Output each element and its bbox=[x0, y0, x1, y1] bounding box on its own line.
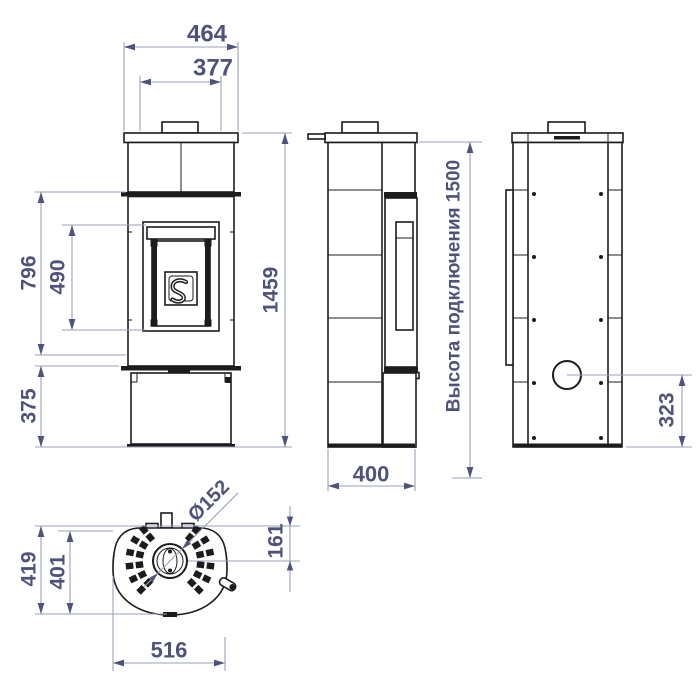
front-door-corner bbox=[151, 320, 158, 327]
dim-label-flue-diameter: Ø152 bbox=[184, 476, 234, 526]
front-door-corner bbox=[205, 240, 212, 247]
back-view bbox=[506, 122, 623, 447]
front-door-corner bbox=[151, 240, 158, 247]
side-chimney-stub bbox=[342, 122, 378, 133]
dim-label-top-depth-total: 419 bbox=[18, 551, 41, 586]
side-door-bottom-bar bbox=[384, 367, 418, 373]
dim-label-depth: 400 bbox=[353, 462, 390, 487]
grille-slot bbox=[206, 562, 214, 569]
drawing-canvas: 464 377 796 490 375 1459 400 Высота подк… bbox=[0, 0, 700, 700]
front-pedestal bbox=[131, 373, 231, 444]
front-door-frame-left-strip bbox=[152, 241, 157, 326]
dim-label-connection-height: Высота подключения 1500 bbox=[444, 160, 465, 412]
front-chimney-stub bbox=[162, 122, 198, 133]
dim-label-base-height: 375 bbox=[18, 388, 41, 423]
grille-slot bbox=[135, 561, 143, 568]
flue-screw-dot bbox=[168, 550, 172, 554]
dim-label-top-depth-inner: 401 bbox=[47, 554, 70, 589]
dim-label-flue-center-height: 323 bbox=[656, 392, 679, 427]
dim-label-flue-offset: 161 bbox=[265, 523, 288, 558]
side-door-top-bar bbox=[384, 192, 417, 198]
dim-label-door-height: 490 bbox=[47, 259, 70, 294]
back-chimney-stub bbox=[548, 122, 585, 133]
back-base-bar bbox=[513, 444, 622, 448]
grille-slot bbox=[196, 561, 204, 568]
flue-screw-dot bbox=[168, 569, 172, 573]
dim-label-top-width: 516 bbox=[151, 638, 188, 663]
front-top-plate bbox=[124, 133, 238, 143]
grille-slot bbox=[125, 562, 133, 569]
back-body bbox=[513, 143, 622, 448]
dim-label-total-height: 1459 bbox=[260, 267, 283, 314]
front-pedestal-latch bbox=[226, 377, 232, 383]
side-lower-panel bbox=[383, 373, 416, 447]
front-door-frame-right-strip bbox=[205, 241, 210, 326]
front-bottom-shelf-bar bbox=[121, 366, 241, 371]
dim-label-firebox-height: 796 bbox=[18, 255, 41, 290]
front-door-lintel bbox=[147, 227, 215, 239]
side-base-bar bbox=[328, 444, 415, 448]
arrow-161-bottom bbox=[287, 561, 293, 571]
side-rear-tab bbox=[308, 134, 325, 139]
side-top-plate bbox=[325, 133, 417, 143]
dim-label-top-plate-width: 464 bbox=[187, 21, 228, 48]
arrow-161-top bbox=[287, 517, 293, 527]
back-vent-slot bbox=[554, 136, 580, 140]
dim-label-body-width: 377 bbox=[193, 55, 233, 82]
side-view bbox=[308, 122, 419, 447]
front-view bbox=[121, 122, 241, 448]
top-view bbox=[113, 513, 237, 617]
front-door-corner bbox=[205, 320, 212, 327]
stove-technical-drawing: 464 377 796 490 375 1459 400 Высота подк… bbox=[0, 0, 700, 700]
back-door-edge-strip bbox=[506, 190, 513, 365]
